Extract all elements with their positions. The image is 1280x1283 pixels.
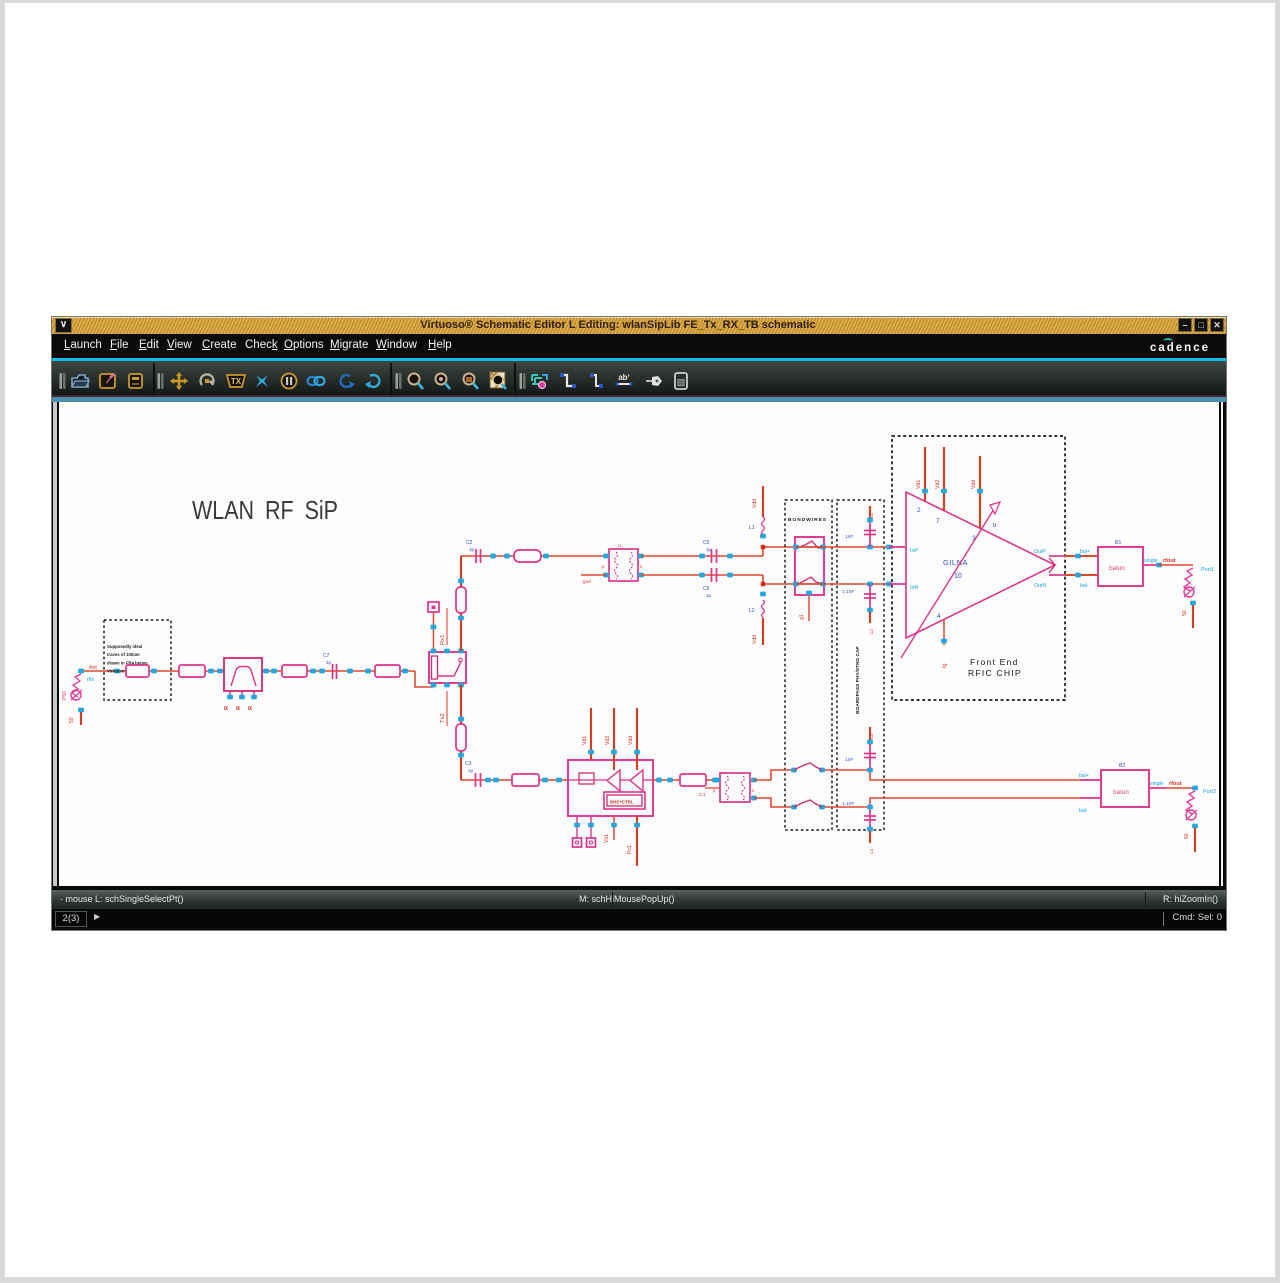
svg-text:▨: ▨	[677, 377, 686, 387]
svg-text:abʼ: abʼ	[618, 373, 630, 382]
svg-text:rfout: rfout	[1169, 781, 1182, 787]
svg-text:C5: C5	[703, 540, 710, 546]
svg-text:Ig: Ig	[942, 663, 948, 668]
svg-text:1p: 1p	[326, 660, 332, 665]
svg-text:B1: B1	[1115, 540, 1121, 546]
svg-text:traces of 100um: traces of 100um	[107, 652, 140, 657]
svg-text:Port2: Port2	[1203, 789, 1216, 795]
svg-text:T1: T1	[617, 543, 622, 548]
svg-text:OutN: OutN	[1034, 583, 1046, 589]
svg-text:b: b	[993, 523, 997, 529]
svg-text:Vd2: Vd2	[605, 736, 611, 745]
svg-text:1p: 1p	[469, 547, 475, 552]
svg-text:Vd1: Vd1	[916, 480, 922, 489]
svg-text:Front End: Front End	[970, 657, 1019, 667]
svg-text:1p: 1p	[468, 768, 474, 773]
svg-text:1p: 1p	[706, 547, 712, 552]
svg-text:7: 7	[936, 518, 940, 525]
svg-text:1p: 1p	[706, 593, 712, 598]
svg-text:Tx2: Tx2	[440, 713, 446, 723]
svg-text:Ant: Ant	[89, 665, 97, 671]
svg-text:1nF: 1nF	[845, 534, 853, 540]
svg-text:p: p	[602, 564, 605, 569]
svg-text:p: p	[713, 788, 716, 793]
svg-text:Port1: Port1	[1201, 567, 1214, 573]
svg-text:R: R	[248, 706, 254, 710]
svg-text:BHE+CTRL: BHE+CTRL	[610, 800, 634, 805]
svg-text:bal+: bal+	[1079, 773, 1089, 779]
svg-text:B2: B2	[1119, 763, 1125, 769]
svg-text:RFIC CHIP: RFIC CHIP	[968, 668, 1022, 678]
svg-text:BONDWIRES: BONDWIRES	[788, 517, 827, 523]
svg-text:C3: C3	[465, 761, 472, 767]
svg-text:1nF: 1nF	[845, 757, 853, 763]
svg-text:s: s	[640, 564, 643, 569]
svg-text:c2: c2	[869, 629, 875, 634]
svg-text:Pc1: Pc1	[627, 845, 633, 854]
svg-text:4: 4	[937, 613, 941, 620]
svg-text:10: 10	[954, 573, 962, 580]
svg-text:balun: balun	[1113, 789, 1129, 796]
svg-text:InP: InP	[910, 548, 918, 554]
svg-text:c1: c1	[869, 513, 875, 518]
svg-text:bal-: bal-	[1080, 583, 1089, 589]
svg-text:C2: C2	[466, 540, 473, 546]
svg-text:c3: c3	[869, 734, 875, 739]
svg-text:C7: C7	[323, 653, 330, 659]
svg-text:L2: L2	[749, 608, 755, 614]
svg-text:Vdd: Vdd	[752, 635, 758, 644]
svg-text:2: 2	[917, 507, 921, 514]
svg-text:50: 50	[69, 717, 75, 723]
svg-text:50: 50	[1182, 610, 1188, 616]
svg-text:rfout: rfout	[1163, 558, 1176, 564]
svg-text:3: 3	[972, 535, 976, 542]
svg-text:C6: C6	[703, 586, 710, 592]
svg-text:Vdd: Vdd	[971, 480, 977, 489]
svg-text:R: R	[236, 706, 242, 710]
svg-text:gnd: gnd	[583, 579, 591, 584]
svg-text:single: single	[1144, 558, 1158, 564]
svg-text:Vdd: Vdd	[628, 736, 634, 745]
svg-text:c4: c4	[869, 849, 875, 854]
svg-text:Supposedly ideal: Supposedly ideal	[107, 644, 142, 649]
svg-text:R: R	[224, 706, 230, 710]
svg-text:50: 50	[1184, 833, 1190, 839]
svg-text:WLAN RF SiP: WLAN RF SiP	[192, 495, 338, 525]
svg-text:Vdd: Vdd	[752, 499, 758, 508]
svg-text:TX: TX	[231, 377, 242, 386]
svg-text:OutP: OutP	[1034, 549, 1046, 555]
svg-text:single: single	[1150, 781, 1164, 787]
svg-text:P50: P50	[62, 691, 68, 700]
svg-text:2:1: 2:1	[699, 792, 706, 797]
svg-text:1.1nF: 1.1nF	[842, 801, 854, 807]
svg-text:bal-: bal-	[1079, 808, 1088, 814]
svg-text:InN: InN	[910, 585, 918, 591]
svg-text:Vd1: Vd1	[582, 736, 588, 745]
svg-text:1.1nF: 1.1nF	[842, 589, 854, 595]
svg-text:Rx1: Rx1	[440, 635, 446, 645]
svg-text:rfin: rfin	[87, 677, 94, 683]
svg-text:balun: balun	[1109, 565, 1125, 572]
svg-text:GILNA: GILNA	[943, 558, 968, 567]
svg-text:bal+: bal+	[1080, 549, 1090, 555]
svg-text:BOARDPASS PHY/STNG CAP: BOARDPASS PHY/STNG CAP	[855, 646, 861, 714]
svg-text:L1: L1	[749, 525, 755, 531]
svg-text:Vd2: Vd2	[935, 480, 941, 489]
svg-text:s: s	[752, 788, 755, 793]
svg-text:g1: g1	[799, 614, 805, 620]
svg-text:Vb1: Vb1	[604, 834, 610, 843]
